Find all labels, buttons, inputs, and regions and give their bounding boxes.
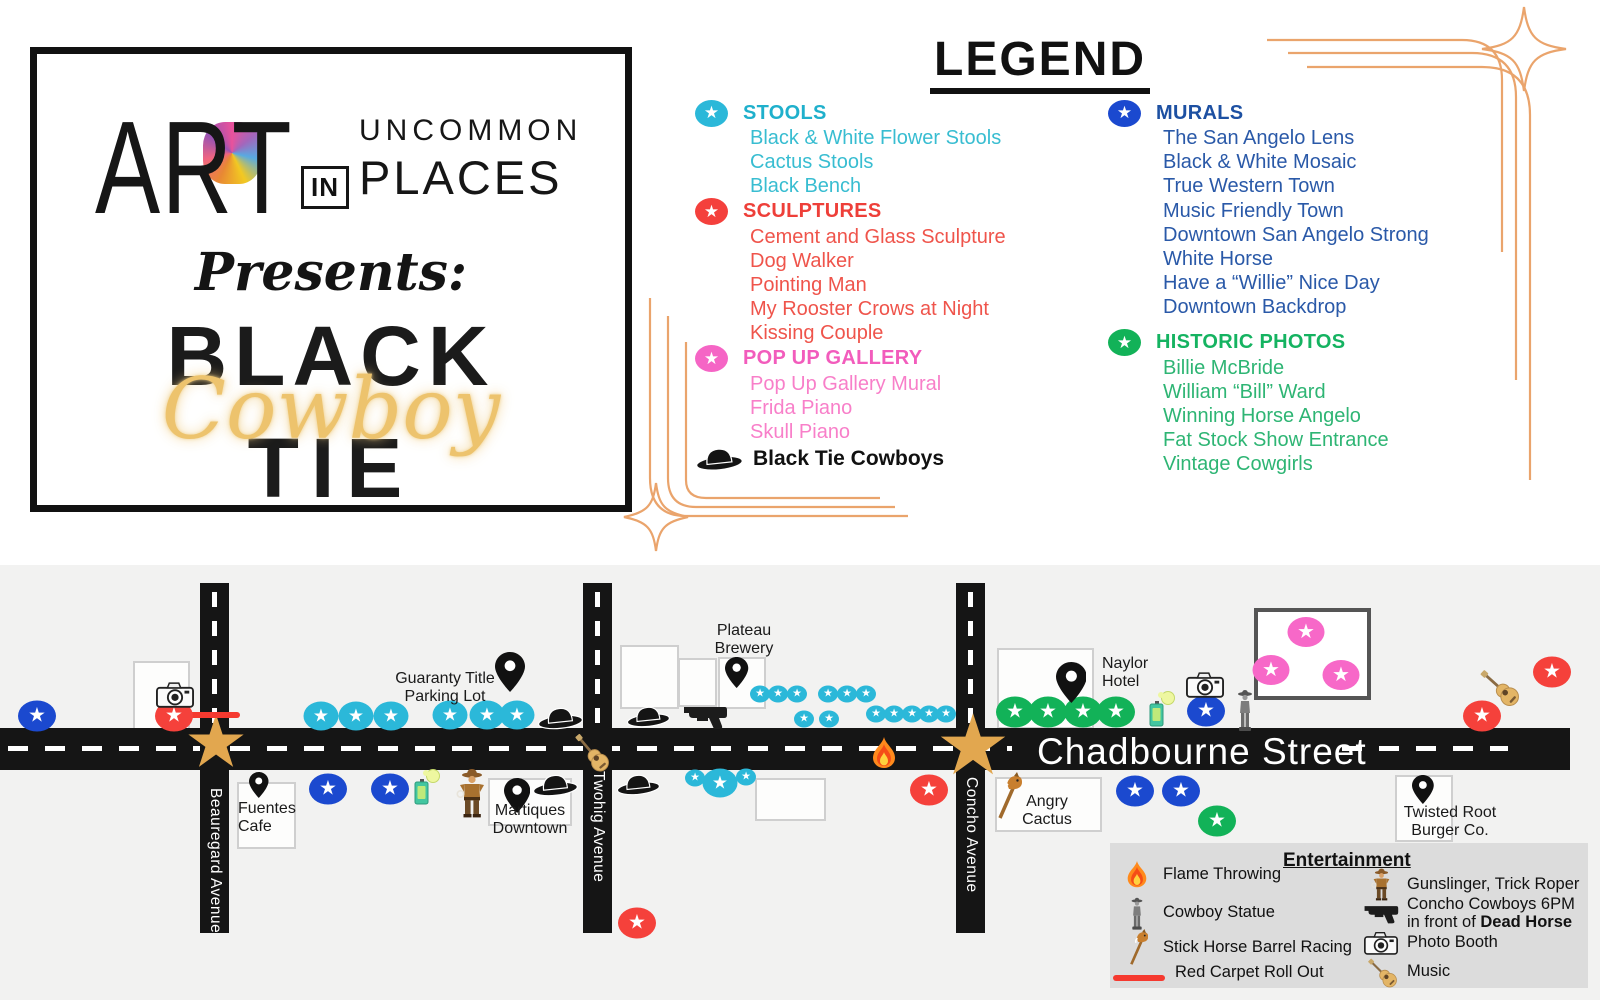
stool-marker: ★: [374, 702, 409, 731]
place-label: MartiquesDowntown: [493, 802, 568, 837]
legend-section-pop-up-gallery: ★POP UP GALLERY: [695, 346, 1125, 372]
legend-item: Dog Walker: [750, 249, 1125, 273]
legend-item: Vintage Cowgirls: [1163, 452, 1578, 476]
guitar-icon: [1362, 955, 1400, 989]
sparkle-icon: [624, 483, 688, 551]
location-pin-icon: [249, 772, 269, 798]
place-label: Guaranty TitleParking Lot: [395, 670, 495, 705]
logo-presents-text: Presents:: [37, 242, 625, 303]
flame-icon: [1118, 861, 1156, 889]
legend-item: Skull Piano: [750, 420, 1125, 444]
mural-marker: ★: [1116, 776, 1154, 807]
legend-items-murals: The San Angelo LensBlack & White MosaicT…: [1163, 126, 1578, 320]
mural-marker: ★: [1162, 776, 1200, 807]
popup-marker: ★: [1253, 655, 1290, 685]
legend-black-tie-cowboys: Black Tie Cowboys: [695, 445, 1125, 473]
legend-item: Cement and Glass Sculpture: [750, 225, 1125, 249]
entertainment-label: Flame Throwing: [1163, 866, 1281, 884]
stool-marker-small: ★: [866, 706, 886, 723]
cowboy-statue-icon: [1236, 689, 1254, 733]
logo-places-text: PLACES: [359, 150, 562, 205]
logo-box: ART IN UNCOMMON PLACES Presents: BLACK C…: [30, 47, 632, 512]
stool-marker-small: ★: [768, 686, 788, 703]
logo-art-text: ART: [95, 102, 293, 234]
legend-item: Winning Horse Angelo: [1163, 404, 1578, 428]
stool-marker-small: ★: [685, 770, 705, 787]
cowboy-statue-icon: [1118, 897, 1156, 929]
mural-marker: ★: [18, 701, 56, 732]
camera-icon: [1186, 671, 1224, 698]
historic-photos-marker-icon: ★: [1108, 329, 1141, 356]
entertainment-label: Stick Horse Barrel Racing: [1163, 939, 1352, 957]
road-center-line: [8, 746, 1012, 751]
legend-items-sculptures: Cement and Glass SculptureDog WalkerPoin…: [750, 225, 1125, 346]
popup-marker: ★: [1288, 617, 1325, 647]
red-carpet-icon: [1110, 963, 1168, 983]
mural-marker: ★: [371, 774, 409, 805]
cowboy-hat-icon: [626, 704, 670, 728]
sculptures-marker-icon: ★: [695, 198, 728, 225]
legend-items-stools: Black & White Flower StoolsCactus Stools…: [750, 126, 1125, 199]
entertainment-row: Red Carpet Roll Out: [1110, 963, 1324, 983]
historic-marker: ★: [1097, 697, 1135, 728]
entertainment-label: Cowboy Statue: [1163, 904, 1275, 922]
legend-section-sculptures: ★SCULPTURES: [695, 199, 1125, 225]
historic-marker: ★: [1198, 806, 1236, 837]
legend-item: Pointing Man: [750, 273, 1125, 297]
legend-column-right: ★MURALSThe San Angelo LensBlack & White …: [1108, 100, 1578, 477]
legend-section-murals: ★MURALS: [1108, 100, 1578, 126]
spray-can-icon: [1147, 691, 1175, 727]
legend-section-label: HISTORIC PHOTOS: [1156, 331, 1345, 354]
cowboy-hat-icon: [532, 772, 578, 797]
stool-marker: ★: [339, 702, 374, 731]
legend-item: True Western Town: [1163, 174, 1578, 198]
legend-item: Black & White Mosaic: [1163, 150, 1578, 174]
legend-item: Music Friendly Town: [1163, 199, 1578, 223]
stool-marker-small: ★: [787, 686, 807, 703]
stools-marker-icon: ★: [695, 100, 728, 127]
road-center-line: [595, 592, 600, 723]
sculpture-marker: ★: [910, 775, 948, 806]
legend-item: Billie McBride: [1163, 356, 1578, 380]
entertainment-label: Concho Cowboys 6PMin front of Dead Horse: [1407, 896, 1575, 931]
place-label: FuentesCafe: [238, 800, 296, 835]
stool-marker-small: ★: [794, 711, 814, 728]
legend-item: Black & White Flower Stools: [750, 126, 1125, 150]
entertainment-row: Concho Cowboys 6PMin front of Dead Horse: [1362, 896, 1575, 931]
spray-can-icon: [412, 769, 440, 805]
legend-black-tie-label: Black Tie Cowboys: [753, 447, 944, 471]
logo-in-text: IN: [301, 166, 349, 209]
legend-item: Black Bench: [750, 174, 1125, 198]
legend-item: Have a “Willie” Nice Day: [1163, 271, 1578, 295]
stool-marker-small: ★: [856, 686, 876, 703]
street-label-chadbourne: Chadbourne Street: [1037, 731, 1367, 773]
entertainment-row: Stick Horse Barrel Racing: [1118, 929, 1352, 966]
stool-marker: ★: [500, 701, 535, 730]
building-outline: [678, 658, 717, 707]
entertainment-row: Flame Throwing: [1118, 861, 1281, 889]
cowboy-hat-icon: [616, 772, 660, 796]
stool-marker-small: ★: [819, 711, 839, 728]
legend-item: Pop Up Gallery Mural: [750, 372, 1125, 396]
legend-item: Fat Stock Show Entrance: [1163, 428, 1578, 452]
legend-items-pop-up-gallery: Pop Up Gallery MuralFrida PianoSkull Pia…: [750, 372, 1125, 445]
place-label: AngryCactus: [1022, 793, 1072, 828]
mural-marker: ★: [309, 774, 347, 805]
legend-section-stools: ★STOOLS: [695, 100, 1125, 126]
legend-item: The San Angelo Lens: [1163, 126, 1578, 150]
entertainment-label: Photo Booth: [1407, 934, 1498, 952]
revolver-icon: [1362, 903, 1400, 924]
legend-section-label: POP UP GALLERY: [743, 347, 922, 370]
legend-column-left: ★STOOLSBlack & White Flower StoolsCactus…: [695, 100, 1125, 473]
entertainment-label: Music: [1407, 963, 1450, 981]
logo-uncommon-text: UNCOMMON: [359, 114, 582, 148]
place-label: Twisted RootBurger Co.: [1404, 804, 1496, 839]
entertainment-label: Gunslinger, Trick Roper: [1407, 876, 1579, 894]
sculpture-marker: ★: [618, 908, 656, 939]
legend-item: Frida Piano: [750, 396, 1125, 420]
event-map: Beauregard AvenueTwohig AvenueConcho Ave…: [0, 565, 1600, 1000]
legend-item: Cactus Stools: [750, 150, 1125, 174]
sculpture-marker: ★: [1533, 657, 1571, 688]
flame-icon: [871, 737, 897, 769]
entertainment-label: Red Carpet Roll Out: [1175, 964, 1324, 982]
street-label: Beauregard Avenue: [206, 788, 224, 933]
stool-marker-small: ★: [750, 686, 770, 703]
logo-cowboy-text: Cowboy: [37, 360, 625, 458]
stool-marker-small: ★: [818, 686, 838, 703]
revolver-icon: [682, 703, 728, 730]
stool-marker-small: ★: [736, 769, 756, 786]
popup-marker: ★: [1323, 660, 1360, 690]
gunslinger-icon: [456, 768, 488, 818]
legend-item: Kissing Couple: [750, 321, 1125, 345]
legend-section-historic-photos: ★HISTORIC PHOTOS: [1108, 330, 1578, 356]
place-label: NaylorHotel: [1102, 655, 1148, 690]
legend-title: LEGEND: [930, 32, 1150, 94]
murals-marker-icon: ★: [1108, 100, 1141, 127]
building-outline: [755, 778, 826, 821]
cowboy-hat-icon: [695, 446, 743, 472]
place-label: PlateauBrewery: [715, 622, 774, 657]
red-carpet-line: [188, 712, 240, 718]
building-outline: [620, 645, 679, 709]
flyer: ART IN UNCOMMON PLACES Presents: BLACK C…: [0, 0, 1600, 1000]
road-center-line: [1342, 746, 1508, 751]
cowboy-hat-icon: [537, 705, 583, 730]
street-label: Concho Avenue: [962, 777, 980, 893]
mural-marker: ★: [1187, 696, 1225, 727]
stool-marker-small: ★: [936, 706, 956, 723]
stool-marker: ★: [304, 702, 339, 731]
entertainment-row: Photo Booth: [1362, 931, 1498, 955]
stool-marker: ★: [703, 769, 738, 798]
legend-item: My Rooster Crows at Night: [750, 297, 1125, 321]
sculpture-marker: ★: [1463, 701, 1501, 732]
legend-item: White Horse: [1163, 247, 1578, 271]
legend-section-label: MURALS: [1156, 102, 1243, 125]
legend-item: Downtown San Angelo Strong: [1163, 223, 1578, 247]
legend-item: William “Bill” Ward: [1163, 380, 1578, 404]
entertainment-row: Cowboy Statue: [1118, 897, 1275, 929]
legend-section-label: SCULPTURES: [743, 200, 882, 223]
street-label: Twohig Avenue: [589, 771, 607, 882]
location-pin-icon: [1056, 662, 1087, 703]
camera-icon: [1362, 931, 1400, 955]
stick-horse-icon: [993, 772, 1023, 820]
pop-up-gallery-marker-icon: ★: [695, 345, 728, 372]
entertainment-row: Music: [1362, 955, 1450, 989]
camera-icon: [156, 681, 194, 708]
stool-marker-small: ★: [837, 686, 857, 703]
location-pin-icon: [725, 657, 748, 688]
legend-item: Downtown Backdrop: [1163, 295, 1578, 319]
location-pin-icon: [495, 652, 525, 692]
legend-items-historic-photos: Billie McBrideWilliam “Bill” WardWinning…: [1163, 356, 1578, 477]
sparkle-icon: [1482, 7, 1566, 91]
stick-horse-icon: [1118, 929, 1156, 966]
stool-marker-small: ★: [884, 706, 904, 723]
legend-section-label: STOOLS: [743, 102, 827, 125]
location-pin-icon: [1412, 775, 1434, 804]
